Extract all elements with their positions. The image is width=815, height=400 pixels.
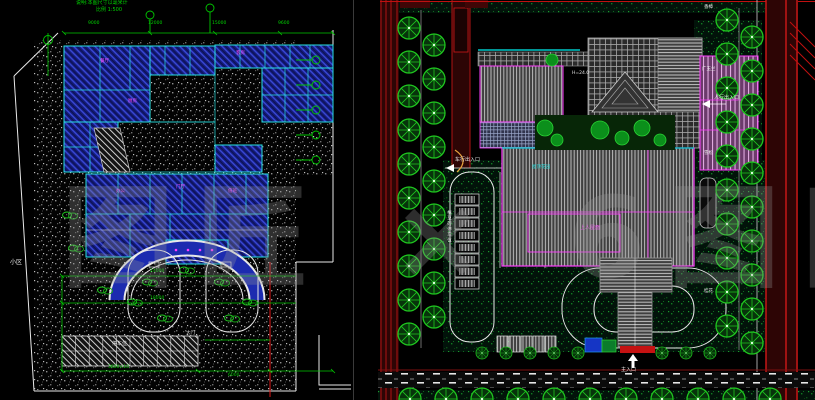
cad-screenshot: 图匠 × 6图网 说明:本图尺寸以毫米计 比例 1:500 9000 12000… [0, 0, 815, 400]
right-south-road [378, 370, 815, 388]
right-tree-row-bottom [399, 388, 781, 400]
entrance-arrow-icon [628, 354, 638, 368]
watermark: 图匠 × 6图网 [62, 148, 815, 310]
left-parking-lot [62, 336, 198, 366]
